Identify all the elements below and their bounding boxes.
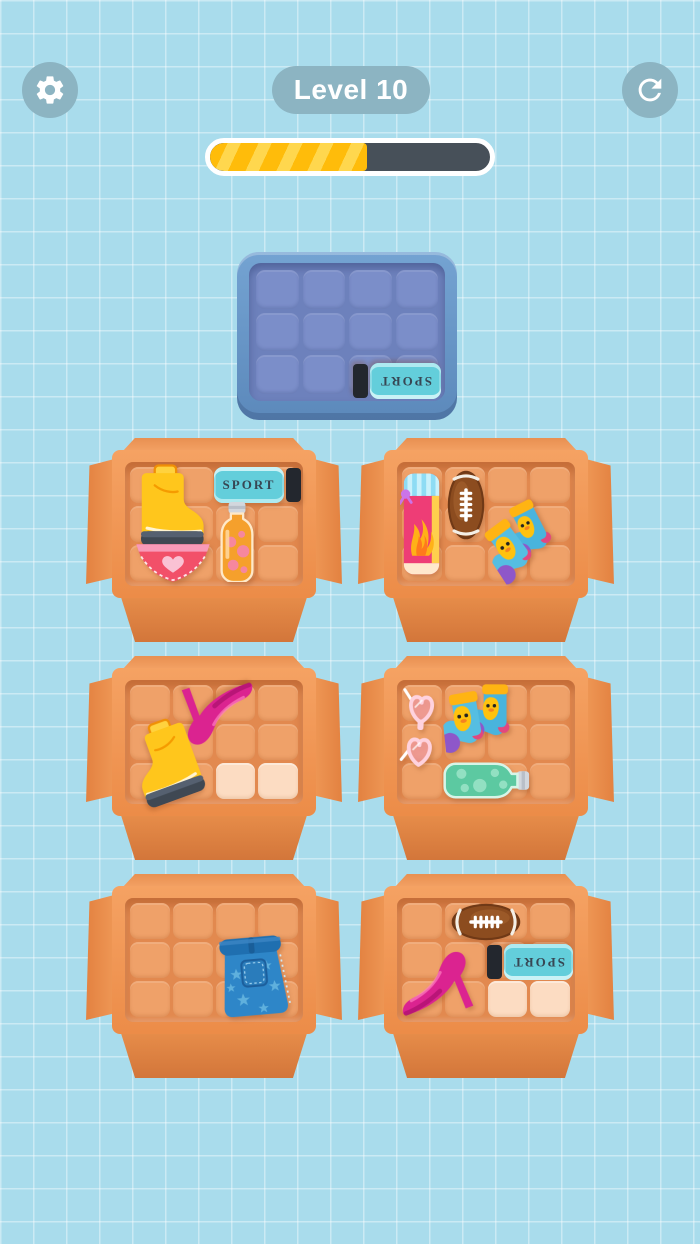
spray-cap [487,945,502,978]
grid-cell [303,270,346,309]
grid-cell [303,355,346,394]
box-body: SPORT [112,450,316,598]
storage-tray[interactable]: SPORT [237,252,457,420]
progress-fill [210,143,367,171]
tray-floor: SPORT [249,263,445,401]
settings-button[interactable] [22,62,78,118]
restart-button[interactable] [622,62,678,118]
spray-label: SPORT [512,954,565,970]
grid-cell [530,763,570,799]
box-body [384,668,588,816]
grid-cell [173,981,213,1017]
grid-cell [130,903,170,939]
grid-cell [303,313,346,352]
spray-body: SPORT [370,363,441,399]
grid-cell [396,313,439,352]
level-badge: Level 10 [272,66,430,114]
gear-icon [33,73,67,107]
box-flap-front [120,1030,308,1078]
box-body [384,450,588,598]
item-heart-glasses[interactable] [398,682,443,769]
item-sport-spray[interactable]: SPORT [487,944,573,980]
grid-cell [445,545,485,581]
item-duck-socks[interactable] [439,676,533,765]
restart-icon [633,73,667,107]
grid-cell [396,270,439,309]
grid-cell [402,903,442,939]
spray-label: SPORT [379,373,432,389]
item-pink-heel[interactable] [396,933,488,1021]
grid-cell [258,545,298,581]
box-body: SPORT [384,886,588,1034]
item-soda-bottle-green[interactable] [443,762,530,799]
box-flap-front [392,812,580,860]
item-flame-towel[interactable] [400,464,443,582]
grid-cell [130,685,170,721]
progress-bar [205,138,495,176]
grid-cell [530,903,570,939]
grid-cell [258,506,298,542]
box-top-right[interactable] [384,450,588,598]
grid-cell [349,313,392,352]
grid-cell [173,942,213,978]
highlighted-cell [258,763,298,799]
grid-cell [530,685,570,721]
spray-cap [353,364,368,397]
item-sport-spray[interactable]: SPORT [353,363,441,399]
item-jean-shorts[interactable] [213,931,295,1023]
box-floor [397,680,575,804]
box-body [112,668,316,816]
box-top-left[interactable]: SPORT [112,450,316,598]
spray-body: SPORT [504,944,573,980]
grid-cell [130,942,170,978]
grid-cell [173,903,213,939]
highlighted-cell [216,763,256,799]
grid-cell [256,355,299,394]
box-floor [125,898,303,1022]
item-yellow-boot[interactable] [131,464,209,548]
spray-body: SPORT [214,467,284,503]
grid-cell [130,981,170,1017]
level-label: Level 10 [294,74,409,106]
box-middle-right[interactable] [384,668,588,816]
box-floor: SPORT [397,898,575,1022]
game-screen: Level 10 SPORT [0,0,700,1244]
grid-cell [256,270,299,309]
box-body [112,886,316,1034]
item-heart-panties[interactable] [130,541,216,585]
box-floor [397,462,575,586]
item-juice-bottle-orange[interactable] [218,502,256,582]
box-floor: SPORT [125,462,303,586]
box-flap-front [392,594,580,642]
grid-cell [530,724,570,760]
grid-cell [258,685,298,721]
box-middle-left[interactable] [112,668,316,816]
highlighted-cell [488,981,528,1017]
box-flap-front [392,1030,580,1078]
box-bottom-right[interactable]: SPORT [384,886,588,1034]
grid-cell [349,270,392,309]
grid-cell [258,724,298,760]
box-flap-front [120,812,308,860]
tray-shadow [238,410,459,428]
spray-label: SPORT [223,477,276,493]
item-sport-spray[interactable]: SPORT [214,467,301,503]
highlighted-cell [530,981,570,1017]
box-floor [125,680,303,804]
grid-cell [256,313,299,352]
box-bottom-left[interactable] [112,886,316,1034]
spray-cap [286,468,301,501]
box-flap-front [120,594,308,642]
